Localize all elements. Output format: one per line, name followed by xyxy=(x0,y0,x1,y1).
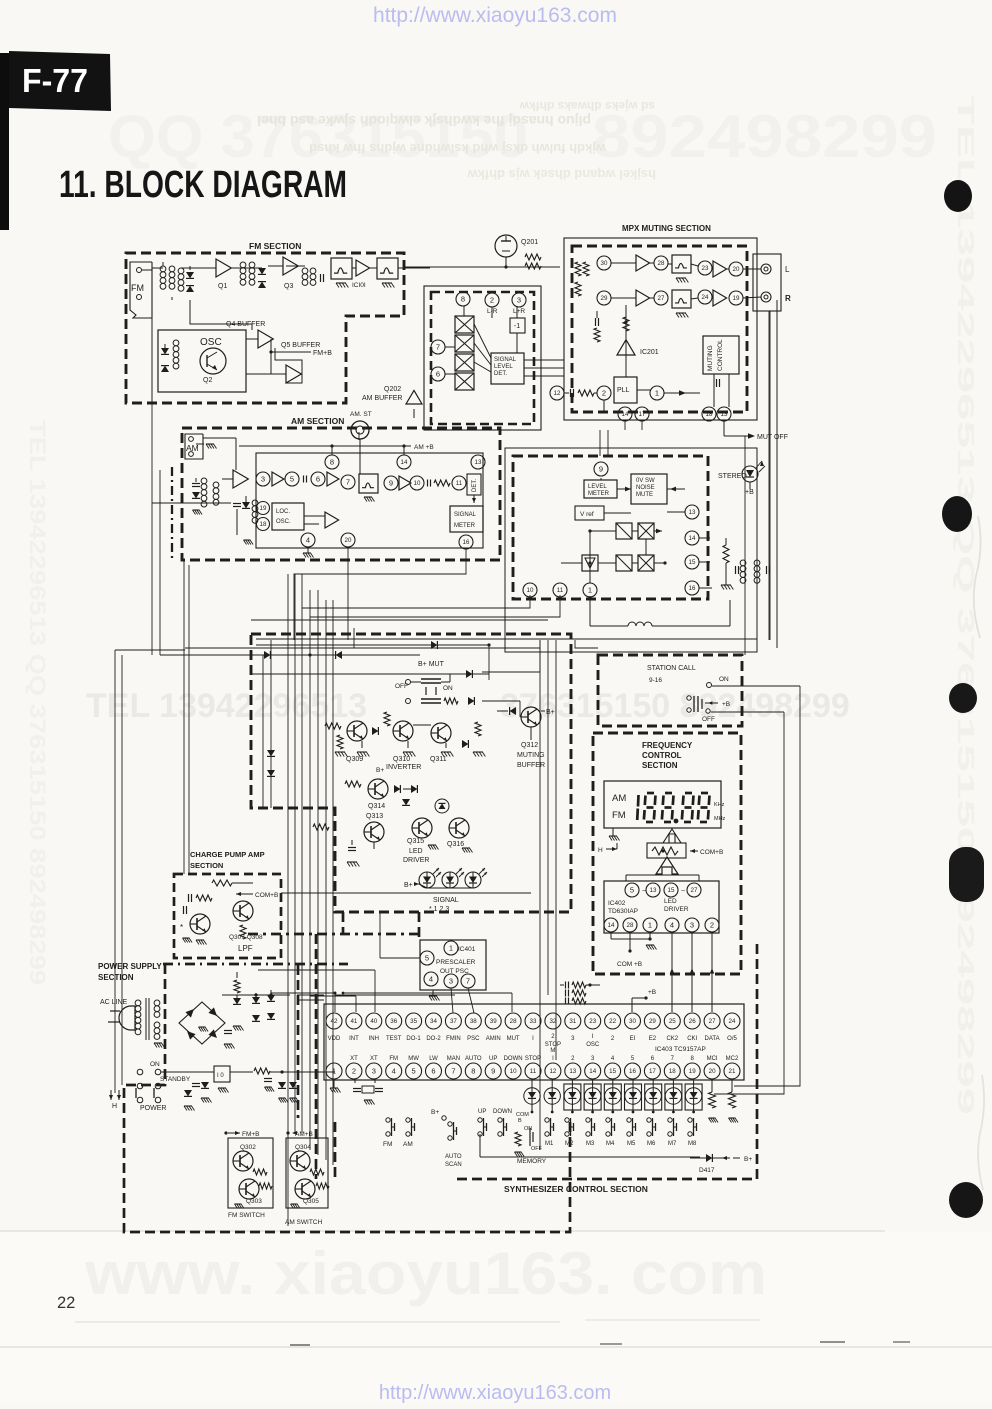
svg-text:13: 13 xyxy=(475,459,482,466)
svg-text:7: 7 xyxy=(466,977,470,986)
svg-text:MAN: MAN xyxy=(447,1056,460,1062)
svg-text:SCAN: SCAN xyxy=(445,1162,462,1168)
svg-text:MHz: MHz xyxy=(714,816,726,822)
svg-text:FM SECTION: FM SECTION xyxy=(249,241,301,251)
svg-text:CKI: CKI xyxy=(687,1036,697,1042)
svg-text:FM: FM xyxy=(612,810,626,821)
svg-text:UP: UP xyxy=(489,1056,497,1062)
svg-text:17: 17 xyxy=(649,1068,656,1075)
svg-text:Q309: Q309 xyxy=(346,756,363,763)
svg-text:LOC.: LOC. xyxy=(276,509,290,515)
svg-text:ICI0I: ICI0I xyxy=(352,282,366,289)
svg-text:POWER: POWER xyxy=(140,1105,166,1112)
svg-text:LEVEL: LEVEL xyxy=(494,364,513,370)
svg-text:TEL 13942296513: TEL 13942296513 xyxy=(86,687,367,725)
svg-text:Q305: Q305 xyxy=(303,1198,319,1205)
svg-text:28: 28 xyxy=(627,922,634,929)
svg-text:AM +B: AM +B xyxy=(414,444,434,451)
svg-text:30: 30 xyxy=(629,1018,636,1025)
svg-text:12: 12 xyxy=(554,390,561,397)
svg-text:34: 34 xyxy=(430,1018,437,1025)
svg-text:10: 10 xyxy=(527,587,534,594)
svg-text:24: 24 xyxy=(702,294,709,301)
svg-text:5: 5 xyxy=(412,1067,416,1076)
svg-text:Q310: Q310 xyxy=(393,756,410,763)
svg-text:STATION CALL: STATION CALL xyxy=(647,665,696,672)
svg-text:MPX MUTING SECTION: MPX MUTING SECTION xyxy=(622,224,711,233)
svg-text:6: 6 xyxy=(431,1067,435,1076)
svg-text:AM: AM xyxy=(612,793,626,804)
svg-text:4: 4 xyxy=(429,975,433,984)
svg-text:SECTION: SECTION xyxy=(98,973,134,982)
svg-text:DET.: DET. xyxy=(494,371,507,377)
svg-text:B+: B+ xyxy=(431,1109,439,1116)
svg-text:1: 1 xyxy=(655,389,659,398)
svg-text:L: L xyxy=(785,265,790,274)
svg-text:OFF: OFF xyxy=(531,1146,543,1152)
svg-text:11: 11 xyxy=(530,1068,537,1075)
svg-text:BUFFER: BUFFER xyxy=(517,762,545,769)
svg-text:1: 1 xyxy=(449,944,453,953)
svg-text:DO-2: DO-2 xyxy=(426,1036,441,1042)
svg-text:TEL 13942296513 QQ 376315150 8: TEL 13942296513 QQ 376315150 892498299 xyxy=(25,420,50,985)
svg-text:16: 16 xyxy=(629,1068,636,1075)
svg-text:pljuo hnasdj fhe kwdhsjk elwqi: pljuo hnasdj fhe kwdhsjk elwqiodh sjwke … xyxy=(257,113,591,129)
svg-text:SECTION: SECTION xyxy=(190,861,223,870)
svg-text:19: 19 xyxy=(689,1068,696,1075)
svg-text:AUTO: AUTO xyxy=(465,1056,482,1062)
svg-text:8: 8 xyxy=(471,1067,475,1076)
svg-text:14: 14 xyxy=(608,922,615,929)
svg-text:METER: METER xyxy=(454,523,476,529)
svg-text:AM SWITCH: AM SWITCH xyxy=(285,1219,322,1226)
svg-text:9: 9 xyxy=(389,479,393,488)
svg-text:37: 37 xyxy=(450,1018,457,1025)
svg-text:ON: ON xyxy=(150,1061,160,1068)
svg-text:EI: EI xyxy=(630,1036,636,1042)
svg-text:ON: ON xyxy=(719,676,729,683)
svg-text:B+: B+ xyxy=(546,709,555,716)
svg-text:MEMORY: MEMORY xyxy=(517,1158,547,1165)
svg-text:AC LINE: AC LINE xyxy=(100,999,128,1006)
svg-text:14: 14 xyxy=(689,535,696,542)
svg-text:15: 15 xyxy=(609,1068,616,1075)
svg-text:http://www.xiaoyu163.com: http://www.xiaoyu163.com xyxy=(373,4,617,27)
svg-text:19: 19 xyxy=(733,295,740,302)
svg-text:Q2: Q2 xyxy=(203,377,212,384)
svg-text:INVERTER: INVERTER xyxy=(386,764,421,771)
svg-text:XT: XT xyxy=(370,1056,378,1062)
svg-text:OUT PSC: OUT PSC xyxy=(440,968,469,975)
svg-text:PLL: PLL xyxy=(617,387,630,394)
svg-text:Q312: Q312 xyxy=(521,742,538,749)
svg-text:AUTO: AUTO xyxy=(445,1154,462,1160)
svg-text:IC401: IC401 xyxy=(458,946,476,953)
svg-text:INT: INT xyxy=(349,1036,359,1042)
svg-text:OFF: OFF xyxy=(395,683,408,690)
svg-text:FM+B: FM+B xyxy=(242,1131,260,1138)
svg-text:DET.: DET. xyxy=(472,479,478,492)
svg-text:~: ~ xyxy=(681,888,685,895)
svg-text:6: 6 xyxy=(316,475,320,484)
svg-text:30: 30 xyxy=(601,260,608,267)
svg-text:MW: MW xyxy=(408,1056,419,1062)
svg-text:11: 11 xyxy=(557,587,564,594)
svg-text:MUTE: MUTE xyxy=(636,492,653,498)
svg-text:4: 4 xyxy=(392,1067,396,1076)
svg-text:35: 35 xyxy=(410,1018,417,1025)
svg-text:10: 10 xyxy=(414,480,421,487)
svg-text:B+: B+ xyxy=(376,767,384,774)
svg-text:2: 2 xyxy=(352,1067,356,1076)
svg-text:MUT OFF: MUT OFF xyxy=(757,434,788,441)
svg-text:M7: M7 xyxy=(668,1141,677,1147)
svg-text:SIGNAL: SIGNAL xyxy=(494,357,517,363)
svg-text:25: 25 xyxy=(669,1018,676,1025)
svg-text:M4: M4 xyxy=(606,1141,615,1147)
svg-text:14: 14 xyxy=(622,411,629,418)
svg-text:39: 39 xyxy=(490,1018,497,1025)
svg-text:8: 8 xyxy=(461,295,465,304)
svg-text:9: 9 xyxy=(491,1067,495,1076)
svg-text:M5: M5 xyxy=(627,1141,636,1147)
svg-text:H: H xyxy=(112,1103,117,1110)
svg-text:AM: AM xyxy=(403,1141,413,1148)
svg-text:I 0: I 0 xyxy=(217,1073,224,1079)
svg-text:DOWN: DOWN xyxy=(493,1109,512,1115)
svg-text:O/5: O/5 xyxy=(727,1036,737,1042)
svg-text:CK2: CK2 xyxy=(666,1036,678,1042)
svg-text:27: 27 xyxy=(658,295,665,302)
svg-text:E2: E2 xyxy=(649,1036,657,1042)
svg-text:B+: B+ xyxy=(744,1156,752,1163)
svg-text:R: R xyxy=(785,294,791,303)
svg-text:2: 2 xyxy=(710,921,714,930)
svg-text:OSC: OSC xyxy=(200,337,222,348)
svg-text:FM+B: FM+B xyxy=(313,350,332,357)
svg-text:15: 15 xyxy=(689,559,696,566)
svg-text:LPF: LPF xyxy=(238,944,253,953)
svg-text:22: 22 xyxy=(57,1294,75,1312)
svg-text:PRESCALER: PRESCALER xyxy=(436,959,476,966)
svg-text:AM. ST: AM. ST xyxy=(350,411,372,418)
svg-text:www. xiaoyu163. com: www. xiaoyu163. com xyxy=(84,1240,767,1307)
svg-text:DRIVER: DRIVER xyxy=(664,906,689,913)
svg-text:13: 13 xyxy=(569,1068,576,1075)
svg-text:UP: UP xyxy=(478,1109,486,1115)
svg-text:Q314: Q314 xyxy=(368,803,385,810)
svg-text:16: 16 xyxy=(689,585,696,592)
svg-text:18: 18 xyxy=(260,521,267,528)
svg-text:376315150 892498299: 376315150 892498299 xyxy=(500,687,850,725)
svg-text:OFF: OFF xyxy=(702,716,715,723)
svg-text:Q202: Q202 xyxy=(384,386,401,393)
svg-text:1: 1 xyxy=(588,586,592,595)
svg-text:21: 21 xyxy=(729,1068,736,1075)
svg-text:20: 20 xyxy=(733,266,740,273)
svg-text:Q3: Q3 xyxy=(284,283,293,290)
svg-text:10: 10 xyxy=(510,1068,517,1075)
svg-text:IC403 TC9157AP: IC403 TC9157AP xyxy=(655,1046,706,1053)
svg-text:M: M xyxy=(550,1048,555,1054)
svg-text:14: 14 xyxy=(401,459,408,466)
svg-text:38: 38 xyxy=(470,1018,477,1025)
svg-text:22: 22 xyxy=(609,1018,616,1025)
svg-text:28: 28 xyxy=(658,260,665,267)
svg-text:M3: M3 xyxy=(586,1141,595,1147)
svg-text:41: 41 xyxy=(350,1018,357,1025)
svg-text:Q304: Q304 xyxy=(295,1144,311,1151)
svg-text:http://www.xiaoyu163.com: http://www.xiaoyu163.com xyxy=(379,1382,611,1404)
svg-text:7: 7 xyxy=(436,343,440,352)
svg-text:NOISE: NOISE xyxy=(636,485,655,491)
svg-text:Q315: Q315 xyxy=(407,838,424,845)
svg-text:13: 13 xyxy=(721,411,728,418)
svg-text:POWER SUPPLY: POWER SUPPLY xyxy=(98,962,162,971)
svg-text:7: 7 xyxy=(346,478,350,487)
svg-text:28: 28 xyxy=(510,1018,517,1025)
svg-text:COM +B: COM +B xyxy=(617,961,642,968)
svg-text:Q5 BUFFER: Q5 BUFFER xyxy=(281,342,320,349)
svg-text:Q1: Q1 xyxy=(218,283,227,290)
svg-text:OSC.: OSC. xyxy=(276,519,291,525)
svg-text:AMIN: AMIN xyxy=(486,1036,501,1042)
svg-text:CONTROL: CONTROL xyxy=(642,751,682,760)
svg-text:FREQUENCY: FREQUENCY xyxy=(642,741,693,750)
svg-text:1: 1 xyxy=(648,921,652,930)
svg-text:LW: LW xyxy=(429,1056,438,1062)
svg-text:DRIVER: DRIVER xyxy=(403,857,429,864)
svg-text:23: 23 xyxy=(589,1018,596,1025)
svg-text:L+R: L+R xyxy=(513,308,525,315)
svg-text:M6: M6 xyxy=(647,1141,656,1147)
svg-text:Q313: Q313 xyxy=(366,813,383,820)
svg-text:METER: METER xyxy=(588,491,610,497)
svg-text:FM: FM xyxy=(131,283,144,293)
svg-text:Q302: Q302 xyxy=(240,1144,256,1151)
svg-text:17: 17 xyxy=(639,411,646,418)
svg-text:TEL 13942296513 QQ 376315150 8: TEL 13942296513 QQ 376315150 892498299 xyxy=(953,95,979,1115)
svg-text:1: 1 xyxy=(332,1067,336,1076)
svg-text:DATA: DATA xyxy=(705,1036,720,1042)
svg-text:M1: M1 xyxy=(545,1141,554,1147)
svg-text:D417: D417 xyxy=(699,1167,715,1174)
svg-text:FM: FM xyxy=(383,1141,392,1148)
svg-text:TEST: TEST xyxy=(386,1036,402,1042)
svg-text:IC201: IC201 xyxy=(640,349,659,356)
svg-text:9: 9 xyxy=(599,465,603,474)
svg-text:COM+B: COM+B xyxy=(255,892,278,899)
svg-text:24: 24 xyxy=(729,1018,736,1025)
svg-text:PSC: PSC xyxy=(467,1036,480,1042)
svg-text:ON: ON xyxy=(524,1126,532,1132)
svg-text:3: 3 xyxy=(449,977,453,986)
svg-text:2: 2 xyxy=(602,389,606,398)
svg-text:AM SECTION: AM SECTION xyxy=(291,416,344,426)
svg-text:16: 16 xyxy=(463,539,470,546)
svg-text:B: B xyxy=(518,1118,522,1124)
svg-text:sd wjeks dhwaks dhfkw: sd wjeks dhwaks dhfkw xyxy=(519,99,655,113)
svg-text:AM BUFFER: AM BUFFER xyxy=(362,395,402,402)
svg-text:STOP: STOP xyxy=(525,1056,541,1062)
svg-text:13: 13 xyxy=(650,887,657,894)
svg-text:~: ~ xyxy=(642,888,646,895)
svg-text:Q316: Q316 xyxy=(447,841,464,848)
svg-text:FM SWITCH: FM SWITCH xyxy=(228,1212,265,1219)
svg-text:hsjkel wqand dhsek wjs dhfkw: hsjkel wqand dhsek wjs dhfkw xyxy=(467,167,656,182)
svg-text:5: 5 xyxy=(425,954,429,963)
svg-text:29: 29 xyxy=(601,295,608,302)
svg-text:3: 3 xyxy=(372,1067,376,1076)
svg-text:31: 31 xyxy=(569,1018,576,1025)
svg-text:3: 3 xyxy=(690,921,694,930)
svg-text:33: 33 xyxy=(530,1018,537,1025)
svg-text:27: 27 xyxy=(709,1018,716,1025)
svg-text:M2: M2 xyxy=(565,1141,574,1147)
svg-text:ON: ON xyxy=(443,685,453,692)
svg-text:26: 26 xyxy=(689,1018,696,1025)
svg-text:TD630IAP: TD630IAP xyxy=(608,908,638,915)
svg-text:IC402: IC402 xyxy=(608,900,626,907)
svg-text:STANDBY: STANDBY xyxy=(160,1076,191,1083)
svg-text:27: 27 xyxy=(691,887,698,894)
svg-text:SIGNAL: SIGNAL xyxy=(433,897,459,904)
svg-text:MUTING: MUTING xyxy=(517,752,545,759)
svg-text:* 1 2 3: * 1 2 3 xyxy=(429,906,449,913)
svg-text:VDD: VDD xyxy=(328,1036,341,1042)
svg-text:KHz: KHz xyxy=(714,802,725,808)
svg-text:18: 18 xyxy=(706,411,713,418)
svg-text:FMIN: FMIN xyxy=(446,1036,461,1042)
svg-text:2: 2 xyxy=(490,296,494,305)
svg-text:XT: XT xyxy=(350,1056,358,1062)
svg-text:F-77: F-77 xyxy=(22,62,88,99)
svg-text:42: 42 xyxy=(331,1018,338,1025)
svg-text:LEVEL: LEVEL xyxy=(588,484,607,490)
svg-text:5: 5 xyxy=(290,475,294,484)
svg-text:7: 7 xyxy=(451,1067,455,1076)
svg-text:3: 3 xyxy=(261,475,265,484)
svg-text:Q201: Q201 xyxy=(521,239,538,246)
svg-text:4: 4 xyxy=(306,536,310,545)
svg-text:40: 40 xyxy=(370,1018,377,1025)
svg-text:14: 14 xyxy=(589,1068,596,1075)
svg-text:12: 12 xyxy=(549,1068,556,1075)
svg-text:15: 15 xyxy=(668,887,675,894)
svg-text:DO-1: DO-1 xyxy=(406,1036,421,1042)
svg-text:4: 4 xyxy=(670,921,674,930)
svg-text:Q311: Q311 xyxy=(430,756,447,763)
svg-text:CHARGE PUMP AMP: CHARGE PUMP AMP xyxy=(190,850,265,859)
svg-text:+B: +B xyxy=(648,989,656,996)
svg-text:3: 3 xyxy=(517,296,521,305)
svg-text:+B: +B xyxy=(745,489,754,496)
svg-text:SIGNAL: SIGNAL xyxy=(454,512,477,518)
svg-text:LED: LED xyxy=(664,898,677,905)
svg-text:5: 5 xyxy=(630,886,634,895)
svg-text:6: 6 xyxy=(436,370,440,379)
svg-text:11: 11 xyxy=(456,480,463,487)
svg-text:20: 20 xyxy=(709,1068,716,1075)
svg-text:*: * xyxy=(180,923,183,932)
svg-text:8: 8 xyxy=(330,458,334,467)
svg-text:FM: FM xyxy=(389,1056,398,1062)
svg-text:DOWN: DOWN xyxy=(504,1056,523,1062)
svg-text:18: 18 xyxy=(669,1068,676,1075)
svg-text:SYNTHESIZER CONTROL SECTION: SYNTHESIZER CONTROL SECTION xyxy=(504,1184,648,1194)
svg-text:B+: B+ xyxy=(404,882,413,889)
svg-text:23: 23 xyxy=(702,265,709,272)
svg-text:LED: LED xyxy=(409,848,423,855)
svg-text:MUTING: MUTING xyxy=(707,345,714,371)
svg-text:H: H xyxy=(598,847,603,854)
svg-text:B+ MUT: B+ MUT xyxy=(418,661,445,668)
svg-text:11. BLOCK DIAGRAM: 11. BLOCK DIAGRAM xyxy=(59,164,347,206)
svg-text:MUT: MUT xyxy=(507,1036,520,1042)
svg-text:MC2: MC2 xyxy=(726,1056,739,1062)
svg-text:wjkdh fulwh dksj whd kslwhdne: wjkdh fulwh dksj whd kslwhdne wjdhs fhw … xyxy=(309,141,607,156)
svg-text:M8: M8 xyxy=(688,1141,697,1147)
svg-text:20: 20 xyxy=(345,537,352,544)
svg-text:Q303: Q303 xyxy=(246,1198,262,1205)
svg-text:19: 19 xyxy=(260,505,267,512)
svg-text:INH: INH xyxy=(369,1036,379,1042)
svg-text:OSC: OSC xyxy=(586,1042,600,1048)
svg-text:COM+B: COM+B xyxy=(700,849,723,856)
svg-text:13: 13 xyxy=(689,509,696,516)
svg-text:MCI: MCI xyxy=(707,1056,718,1062)
svg-text:V ref: V ref xyxy=(580,511,594,518)
svg-text:CONTROL: CONTROL xyxy=(717,339,724,371)
svg-text:SECTION: SECTION xyxy=(642,761,678,770)
svg-text:36: 36 xyxy=(390,1018,397,1025)
svg-text:9-16: 9-16 xyxy=(649,677,662,684)
svg-text:-1: -1 xyxy=(514,323,520,330)
svg-text:+B: +B xyxy=(722,701,730,708)
svg-text:29: 29 xyxy=(649,1018,656,1025)
svg-text:0V SW: 0V SW xyxy=(636,478,655,484)
